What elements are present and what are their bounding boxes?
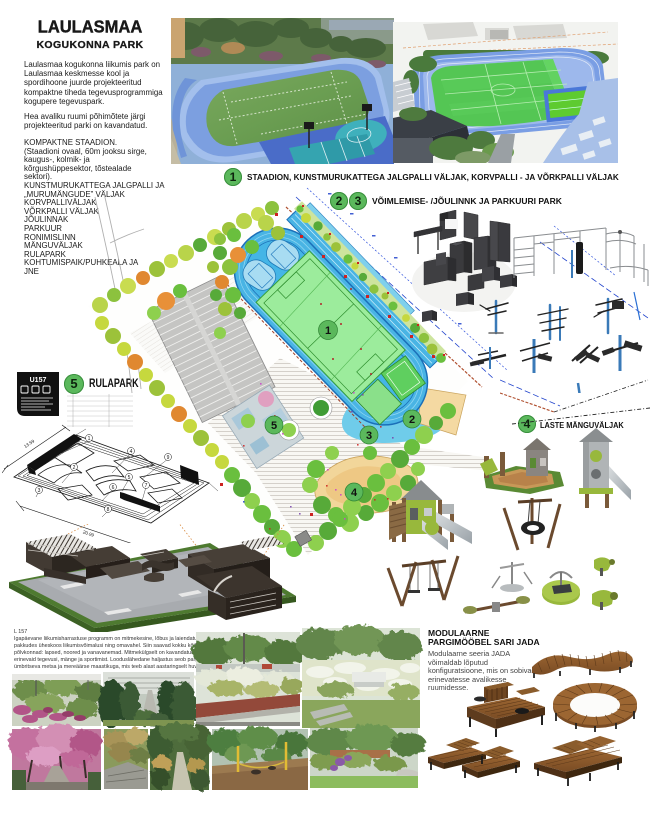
svg-text:13.59: 13.59 [23,438,36,449]
svg-text:4: 4 [351,487,358,499]
svg-text:3: 3 [38,488,41,494]
svg-text:3: 3 [366,430,372,442]
svg-text:2: 2 [409,414,415,426]
svg-text:5: 5 [271,420,277,432]
svg-text:5: 5 [128,475,131,481]
svg-text:6: 6 [112,485,115,491]
svg-text:9: 9 [167,455,170,461]
svg-text:4: 4 [130,449,133,455]
svg-text:8: 8 [107,507,110,513]
svg-text:1: 1 [88,436,91,442]
svg-text:1: 1 [325,325,331,337]
svg-text:7: 7 [145,483,148,489]
svg-text:U157: U157 [30,377,47,384]
svg-text:2: 2 [73,465,76,471]
